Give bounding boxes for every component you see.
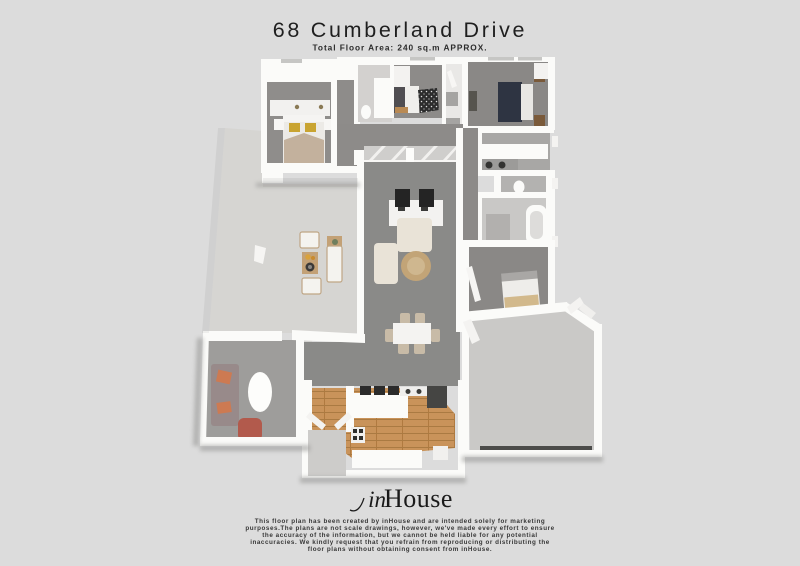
svg-text:68 Cumberland Drive: 68 Cumberland Drive	[273, 18, 527, 42]
svg-text:This floor plan has been creat: This floor plan has been created by inHo…	[255, 518, 546, 525]
svg-text:House: House	[384, 484, 453, 513]
svg-text:floor plans without obtaining: floor plans without obtaining consent fr…	[308, 546, 492, 553]
svg-text:the accuracy of the informatio: the accuracy of the information, but we …	[262, 532, 537, 539]
svg-text:inaccuracies. We kindly reques: inaccuracies. We kindly request that you…	[250, 539, 550, 546]
svg-text:purposes.The plans are not sca: purposes.The plans are not scale drawing…	[245, 525, 554, 532]
svg-text:Total Floor Area: 240 sq.m APP: Total Floor Area: 240 sq.m APPROX.	[313, 43, 488, 53]
